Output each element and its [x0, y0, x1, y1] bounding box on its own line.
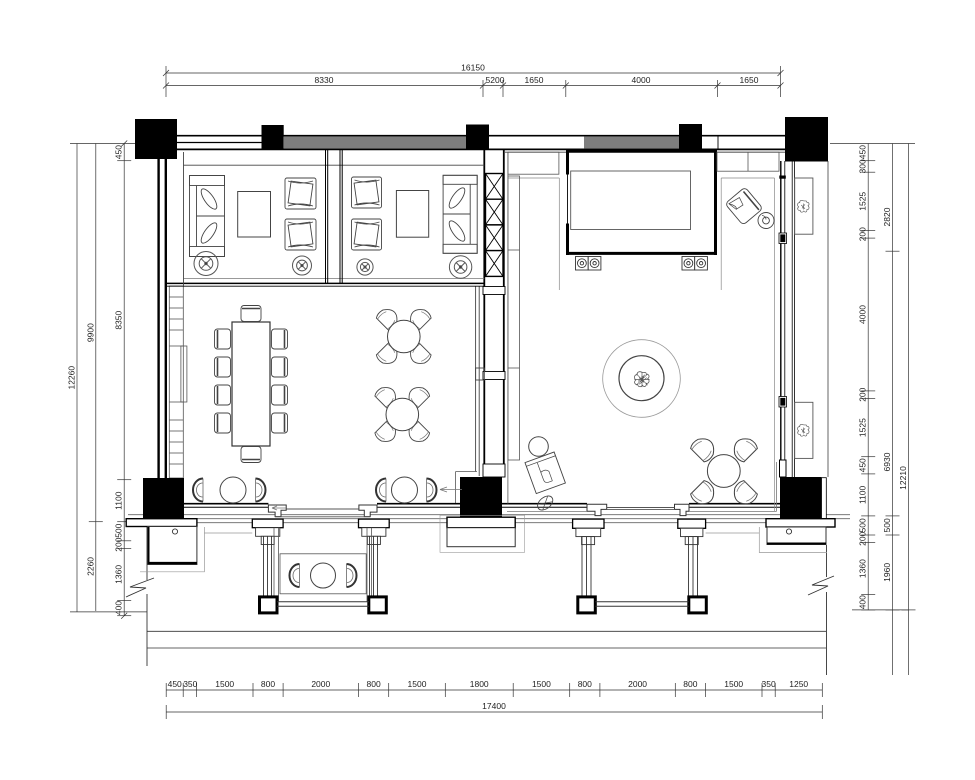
- svg-text:200: 200: [858, 531, 868, 545]
- svg-text:1100: 1100: [114, 491, 124, 510]
- svg-text:2000: 2000: [628, 679, 647, 689]
- svg-text:2260: 2260: [85, 557, 95, 576]
- svg-text:1525: 1525: [858, 192, 868, 211]
- svg-text:1500: 1500: [724, 679, 743, 689]
- svg-text:1525: 1525: [858, 418, 868, 437]
- svg-text:400: 400: [858, 595, 868, 609]
- svg-text:6930: 6930: [882, 452, 892, 471]
- svg-text:450: 450: [114, 145, 124, 159]
- svg-text:1500: 1500: [532, 679, 551, 689]
- svg-text:1360: 1360: [858, 559, 868, 578]
- svg-text:4000: 4000: [858, 305, 868, 324]
- svg-text:1650: 1650: [525, 75, 544, 85]
- svg-text:1800: 1800: [470, 679, 489, 689]
- svg-text:2820: 2820: [882, 207, 892, 226]
- svg-text:500: 500: [114, 523, 124, 537]
- svg-text:200: 200: [858, 227, 868, 241]
- svg-text:450: 450: [858, 145, 868, 159]
- svg-text:200: 200: [114, 537, 124, 551]
- svg-text:500: 500: [858, 518, 868, 532]
- svg-text:1250: 1250: [789, 679, 808, 689]
- svg-text:9900: 9900: [85, 323, 95, 342]
- svg-text:1100: 1100: [858, 485, 868, 504]
- svg-text:800: 800: [578, 679, 592, 689]
- svg-text:450: 450: [858, 458, 868, 472]
- svg-text:400: 400: [114, 601, 124, 615]
- svg-text:12260: 12260: [67, 366, 77, 390]
- svg-text:800: 800: [261, 679, 275, 689]
- svg-text:350: 350: [183, 679, 197, 689]
- svg-text:8330: 8330: [315, 75, 334, 85]
- svg-text:8350: 8350: [114, 310, 124, 329]
- svg-text:5200: 5200: [486, 75, 505, 85]
- svg-text:1500: 1500: [408, 679, 427, 689]
- svg-text:300: 300: [858, 159, 868, 173]
- svg-text:4000: 4000: [632, 75, 651, 85]
- svg-text:1650: 1650: [740, 75, 759, 85]
- svg-text:350: 350: [762, 679, 776, 689]
- svg-text:800: 800: [367, 679, 381, 689]
- svg-text:450: 450: [168, 679, 182, 689]
- svg-text:500: 500: [882, 518, 892, 532]
- svg-text:12210: 12210: [898, 466, 908, 490]
- svg-text:1960: 1960: [882, 563, 892, 582]
- svg-text:2000: 2000: [311, 679, 330, 689]
- svg-text:1500: 1500: [215, 679, 234, 689]
- svg-text:200: 200: [858, 387, 868, 401]
- svg-text:16150: 16150: [461, 63, 485, 73]
- svg-text:800: 800: [683, 679, 697, 689]
- svg-text:1360: 1360: [114, 565, 124, 584]
- svg-text:17400: 17400: [482, 701, 506, 711]
